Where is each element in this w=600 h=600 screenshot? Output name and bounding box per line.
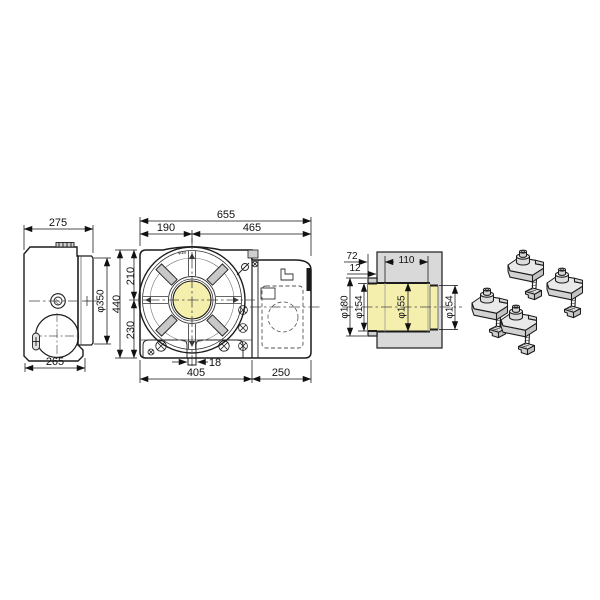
page-background: [0, 0, 600, 600]
dim-flange-thickness-label: 12: [349, 263, 361, 274]
technical-drawing-canvas: 275 265 φ350: [0, 0, 600, 600]
dim-center-to-bottom-label: 230: [125, 321, 137, 339]
dim-side-width-top-label: 275: [49, 217, 67, 229]
side-small-slot: [33, 333, 40, 350]
dim-center-to-top-label: 210: [125, 267, 137, 285]
dim-motor-section-width-label: 250: [272, 367, 290, 379]
dim-pilot-depth-label: 72: [346, 251, 358, 262]
dim-table-diameter-label: φ350: [96, 289, 107, 313]
dim-center-offset-right-label: 465: [243, 222, 261, 234]
dim-center-offset-left-label: 190: [157, 222, 175, 234]
dim-overall-width-label: 655: [217, 209, 235, 221]
dim-bore-rear-label: φ154: [354, 295, 365, 319]
connector-bar: [307, 268, 312, 291]
dim-side-base-width-label: 265: [46, 356, 64, 368]
side-top-screw: [56, 243, 74, 248]
dim-bore-length-label: 110: [399, 255, 415, 266]
rotary-table-dimension-drawing: 275 265 φ350: [0, 0, 600, 600]
junction-top-block: [248, 250, 258, 258]
dim-pilot-diameter-label: φ180: [340, 295, 351, 319]
dim-overall-height-label: 440: [111, 295, 123, 313]
dim-key-width-label: 18: [209, 357, 221, 369]
dim-bore-center-label: φ155: [397, 295, 408, 319]
slot-callout-label: φ18: [178, 250, 186, 255]
dim-base-width-label: 405: [187, 367, 205, 379]
dim-bore-front-label: φ154: [445, 295, 456, 319]
